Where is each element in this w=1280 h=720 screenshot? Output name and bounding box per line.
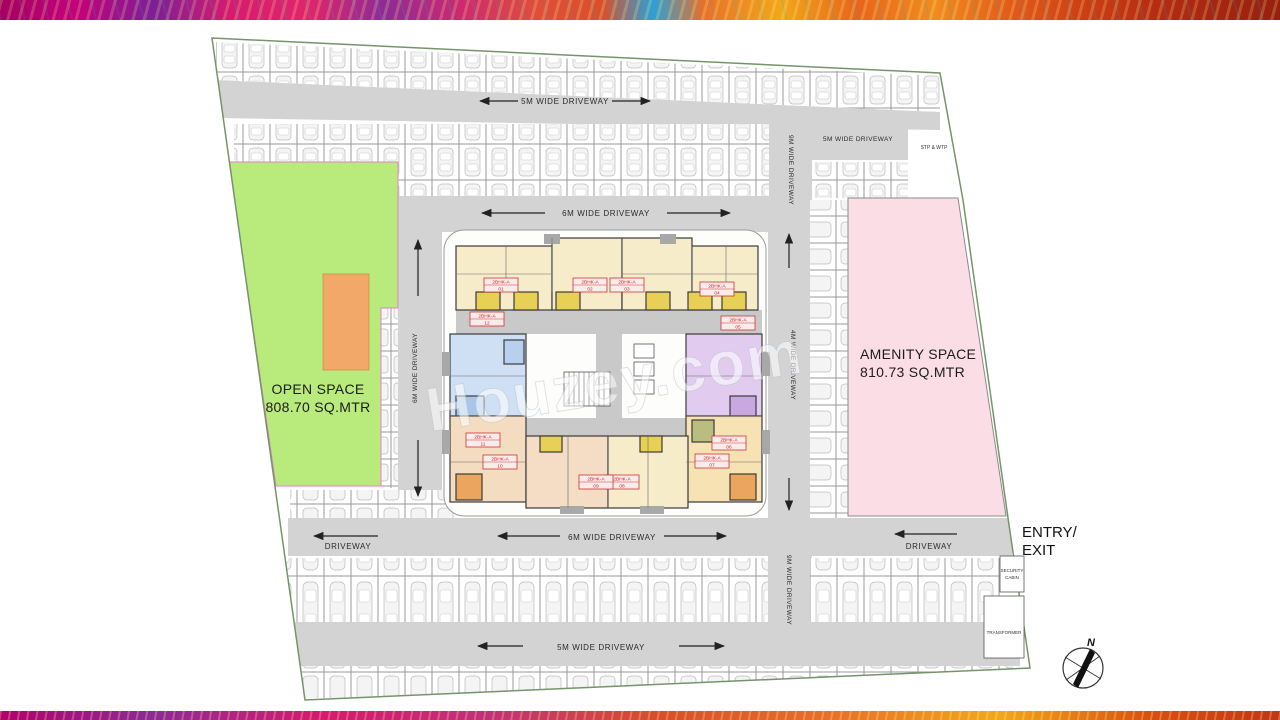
unit-label: 2BHK-A02 (573, 278, 607, 293)
unit-label: 2BHK-A04 (700, 282, 734, 297)
driveway-label-right-vertical-lower: 9M WIDE DRIVEWAY (785, 555, 792, 625)
driveway-label-bottom: 5M WIDE DRIVEWAY (557, 643, 645, 652)
driveway-label-left-vertical: 6M WIDE DRIVEWAY (412, 333, 419, 403)
amenity-space-zone: AMENITY SPACE 810.73 SQ.MTR (848, 198, 1006, 516)
unit-label: 2BHK-A01 (484, 278, 518, 293)
security-cabin-label-2: CABIN (1005, 575, 1019, 580)
entry-exit-line1: ENTRY/ (1022, 524, 1078, 541)
unit-number: 07 (709, 463, 715, 469)
unit-type: 2BHK-A (729, 318, 747, 324)
driveway-label-top-right: 5M WIDE DRIVEWAY (823, 136, 893, 143)
security-cabin-label-1: SECURITY (1001, 568, 1024, 573)
unit-number: 04 (714, 291, 720, 297)
parking-row (290, 490, 454, 518)
driveway-label-lower-inner: 6M WIDE DRIVEWAY (568, 533, 656, 542)
entry-exit: ENTRY/ EXIT (1022, 524, 1078, 559)
transformer-label: TRANSFORMER (987, 630, 1023, 635)
open-space-area (229, 162, 398, 486)
entry-exit-line2: EXIT (1022, 542, 1055, 559)
unit-type: 2BHK-A (492, 280, 510, 286)
open-space-title: OPEN SPACE (272, 381, 365, 397)
transformer-yard: TRANSFORMER (984, 596, 1024, 658)
unit-label: 2BHK-A09 (579, 475, 613, 490)
unit-number: 06 (726, 445, 732, 451)
unit-type: 2BHK-A (587, 477, 605, 483)
amenity-space-area-label: 810.73 SQ.MTR (860, 364, 965, 380)
driveway-label-lower-left: DRIVEWAY (325, 542, 372, 551)
stp-wtp-label: STP & WTP (921, 145, 949, 151)
unit-number: 11 (481, 442, 486, 448)
unit-number: 03 (624, 287, 630, 293)
unit-label: 2BHK-A10 (483, 455, 517, 470)
open-space-zone: OPEN SPACE 808.70 SQ.MTR (229, 162, 398, 486)
parking-row (258, 666, 1013, 698)
parking-column (381, 308, 398, 488)
decorative-banner-bottom (0, 711, 1280, 720)
driveway-label-right-vertical-upper: 9M WIDE DRIVEWAY (787, 135, 794, 205)
unit-number: 09 (593, 484, 599, 490)
site-plan-page: OPEN SPACE 808.70 SQ.MTR AMENITY SPACE 8… (0, 0, 1280, 720)
unit-number: 12 (484, 321, 490, 327)
unit-type: 2BHK-A (618, 280, 636, 286)
parking-row (810, 558, 1002, 622)
unit-label: 2BHK-A06 (712, 436, 746, 451)
compass-icon: N (1063, 637, 1103, 688)
unit-type: 2BHK-A (703, 456, 721, 462)
unit-number: 10 (497, 464, 503, 470)
parking-row (250, 558, 768, 622)
unit-label: 2BHK-A07 (695, 454, 729, 469)
unit-number: 01 (498, 287, 504, 293)
site-plan-drawing: OPEN SPACE 808.70 SQ.MTR AMENITY SPACE 8… (0, 0, 1280, 720)
unit-number: 02 (587, 287, 593, 293)
driveway-label-lower-right: DRIVEWAY (906, 542, 953, 551)
unit-label: 2BHK-A12 (470, 312, 504, 327)
driveway-label-top: 5M WIDE DRIVEWAY (521, 97, 609, 106)
compass-north-label: N (1087, 637, 1096, 649)
unit-type: 2BHK-A (720, 438, 738, 444)
unit-label: 2BHK-A03 (610, 278, 644, 293)
parking-row (234, 124, 395, 164)
unit-type: 2BHK-A (478, 314, 496, 320)
open-space-area-label: 808.70 SQ.MTR (265, 399, 370, 415)
unit-type: 2BHK-A (581, 280, 599, 286)
parking-row (812, 162, 908, 198)
parking-row (395, 124, 769, 196)
unit-type: 2BHK-A (708, 284, 726, 290)
parking-column (810, 200, 848, 518)
driveway-label-upper-inner: 6M WIDE DRIVEWAY (562, 209, 650, 218)
amenity-space-title: AMENITY SPACE (860, 346, 976, 362)
site-interior: OPEN SPACE 808.70 SQ.MTR AMENITY SPACE 8… (212, 38, 1030, 700)
unit-number: 08 (619, 484, 625, 490)
unit-type: 2BHK-A (491, 457, 509, 463)
security-cabin: SECURITY CABIN (1000, 556, 1024, 592)
unit-type: 2BHK-A (613, 477, 631, 483)
open-space-structure (323, 274, 369, 370)
